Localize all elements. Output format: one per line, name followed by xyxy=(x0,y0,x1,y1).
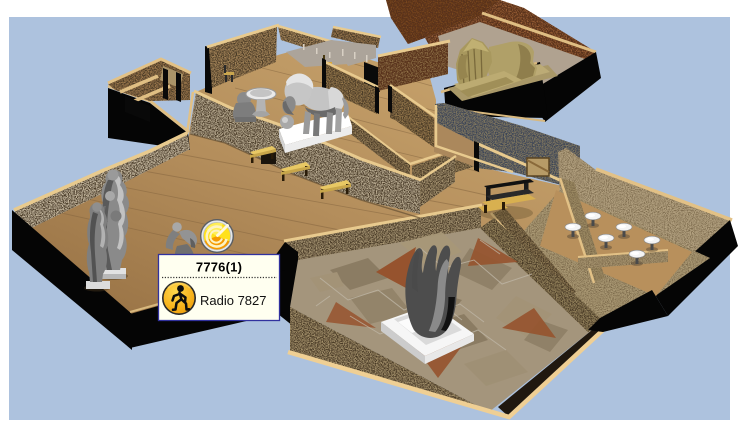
svg-text:Radio 7827: Radio 7827 xyxy=(200,293,267,308)
svg-text:7776(1): 7776(1) xyxy=(196,260,242,275)
